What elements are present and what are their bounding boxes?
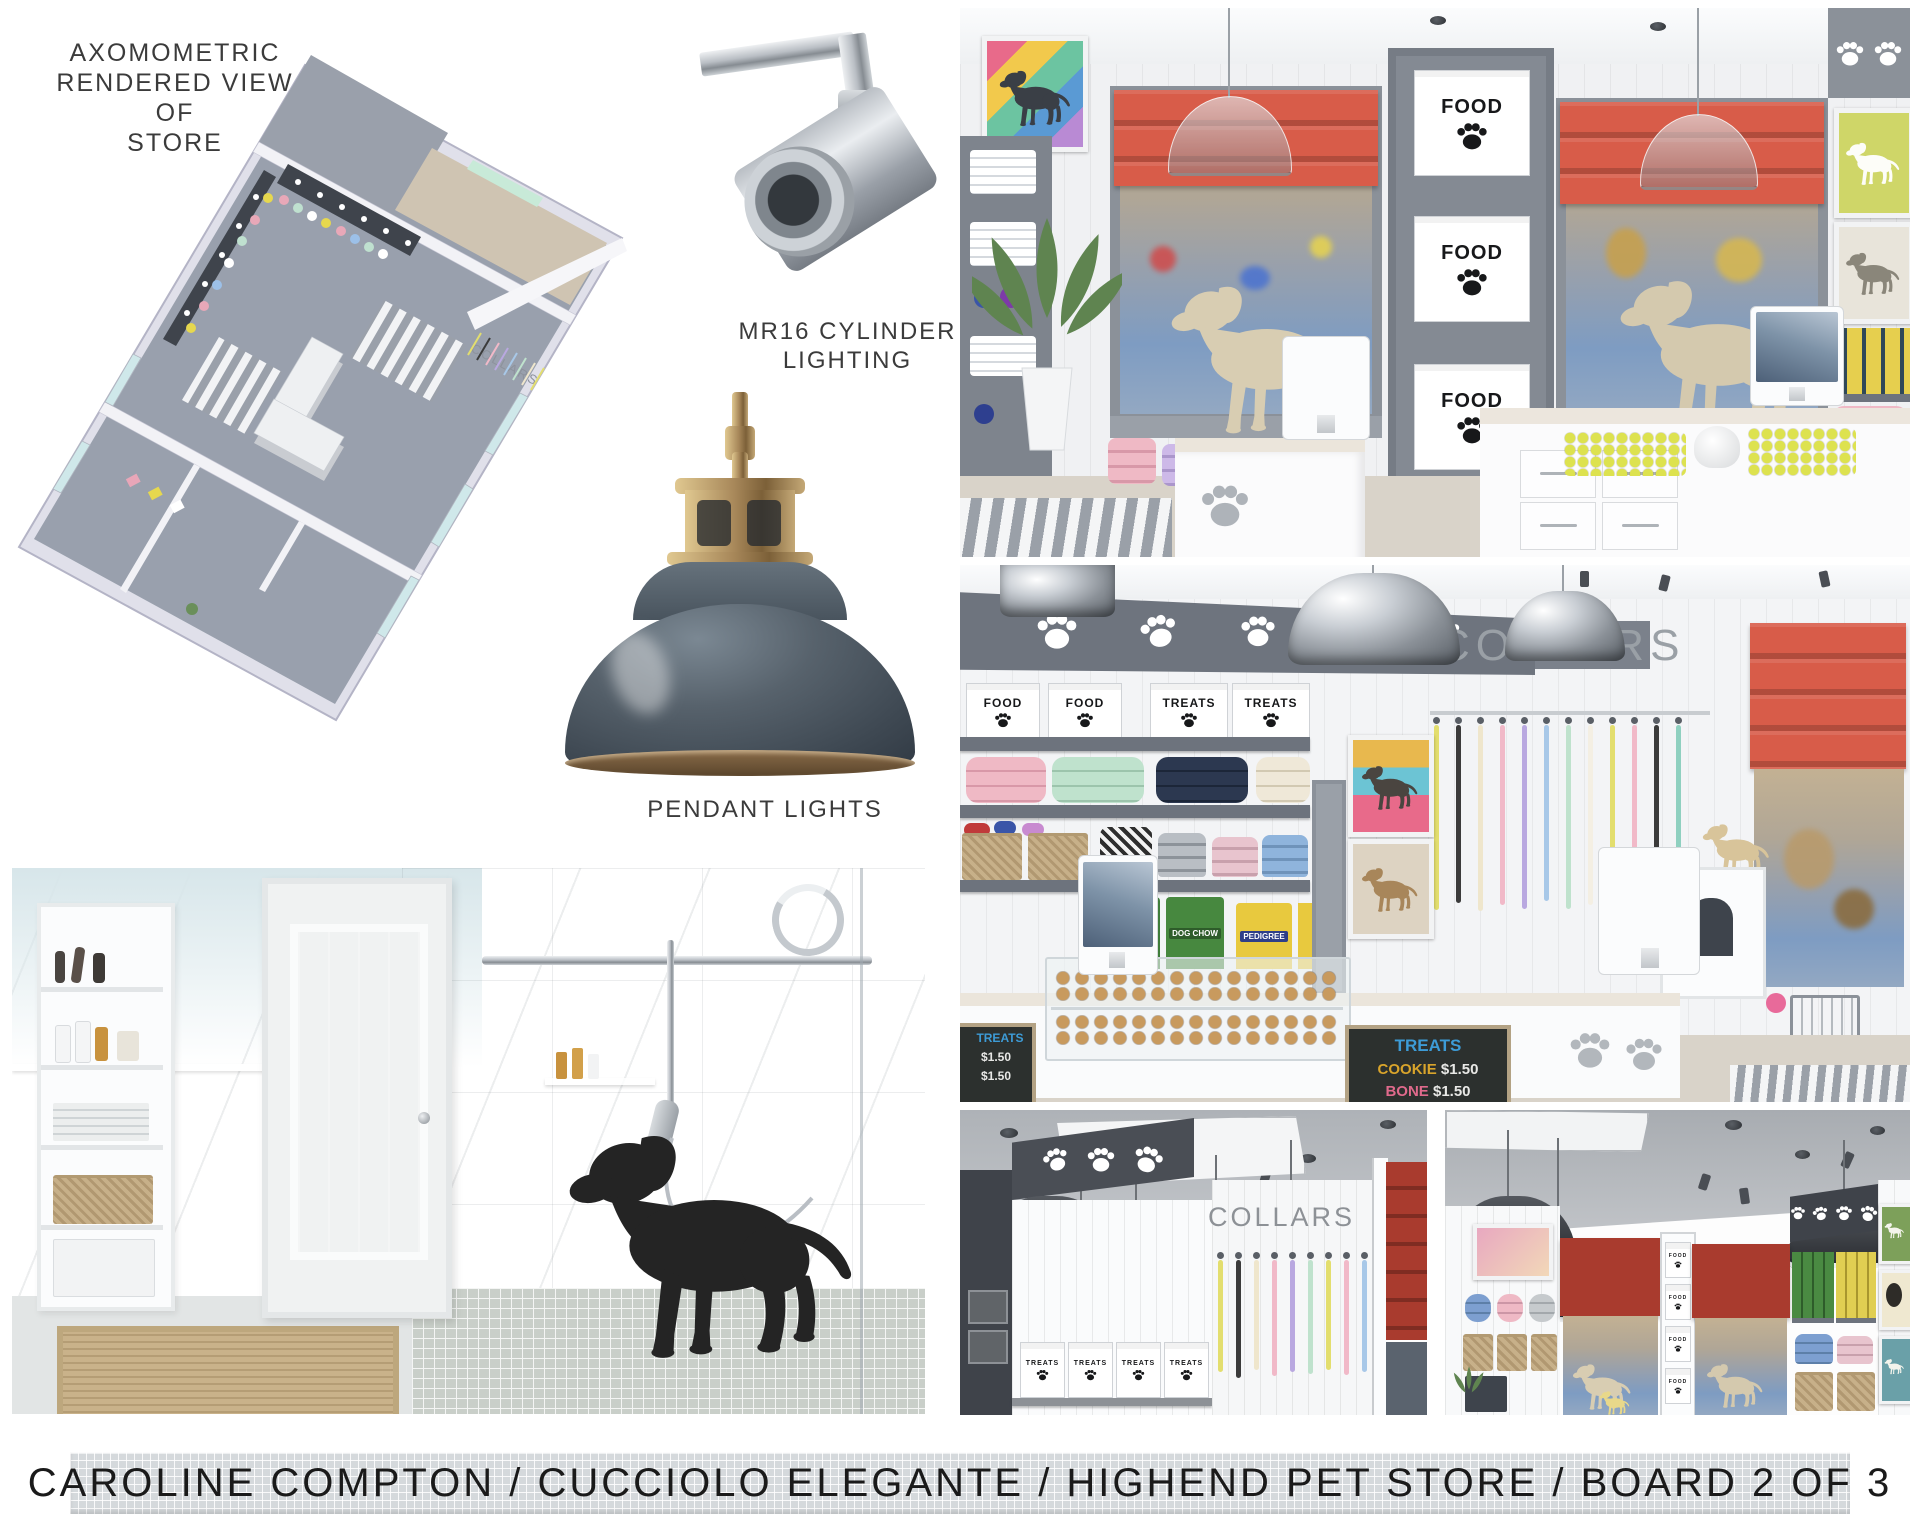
paw-icon	[1135, 609, 1183, 654]
chalk-price: $1.50	[960, 1048, 1032, 1067]
pendant-brass-rim	[565, 750, 915, 776]
paw-icon	[1128, 1140, 1167, 1177]
grooming-brush	[55, 951, 65, 983]
paw-icon	[1810, 1203, 1830, 1222]
ceiling-spotlight	[1650, 22, 1666, 31]
wicker-basket	[1531, 1334, 1557, 1371]
cushion-stack-pink	[966, 757, 1046, 803]
chalk-price: $1.50	[1433, 1083, 1471, 1100]
art-dog	[1883, 1221, 1905, 1239]
chrome-dome-pendant	[1505, 591, 1625, 661]
art-dog	[1359, 862, 1419, 914]
wicker-basket	[1837, 1372, 1875, 1411]
chalk-item: COOKIE	[1378, 1061, 1437, 1078]
food-box: FOOD	[1665, 1284, 1691, 1320]
paw-soffit	[1828, 8, 1910, 98]
leash-strip	[1478, 725, 1483, 911]
treats-box-label: TREATS	[1026, 1360, 1059, 1367]
shelf-box	[968, 1290, 1008, 1324]
checkout-counter	[1175, 438, 1365, 557]
red-roman-shade	[1750, 623, 1906, 769]
pendant-specular-highlight	[601, 624, 680, 722]
folded-stack	[1529, 1294, 1555, 1322]
amber-bottle	[95, 1027, 108, 1061]
paw-icon	[1039, 1142, 1074, 1175]
paw-icon	[1239, 614, 1277, 648]
bowl-stack-blue	[1262, 835, 1308, 877]
chalk-price: $1.50	[960, 1067, 1032, 1086]
wicker-basket	[53, 1175, 153, 1224]
pendant-lights-label: PENDANT LIGHTS	[640, 796, 890, 825]
paw-icon	[1199, 482, 1251, 529]
paw-icon	[1180, 712, 1198, 728]
paw-icon	[1835, 40, 1865, 67]
food-box: FOOD	[1414, 70, 1530, 176]
dog-art-frame	[1879, 1336, 1910, 1404]
treats-box: TREATS	[1020, 1342, 1065, 1398]
striped-rug	[1730, 1065, 1910, 1102]
wicker-basket	[1497, 1334, 1527, 1371]
recessed-light	[1795, 1150, 1810, 1159]
treats-box-label: TREATS	[1170, 1360, 1203, 1367]
tennis-ball-display	[1748, 428, 1856, 476]
food-box-label: FOOD	[1669, 1337, 1687, 1343]
treats-box: TREATS	[1232, 683, 1310, 741]
paw-icon	[1624, 1036, 1664, 1072]
shelf	[41, 1225, 163, 1230]
board-title: CAROLINE COMPTON / CUCCIOLO ELEGANTE / H…	[28, 1461, 1892, 1506]
wall-column	[1878, 1180, 1910, 1415]
shelf-board	[960, 805, 1310, 818]
food-box: FOOD	[1414, 216, 1530, 322]
collars-sign: COLLARS	[1208, 1202, 1378, 1233]
chalkboard-menu-partial: TREATS $1.50 $1.50	[960, 1023, 1036, 1102]
cookie-tray	[1055, 1015, 1339, 1045]
dark-shelf-column	[960, 1170, 1012, 1415]
paw-icon	[1035, 611, 1079, 651]
striped-rug	[960, 498, 1172, 557]
amber-bottle	[556, 1052, 567, 1079]
paw-icon	[1084, 1369, 1097, 1381]
sketchup-render-storefront: FOOD FOOD FOOD FOOD	[1445, 1110, 1910, 1415]
paw-icon	[1873, 40, 1903, 67]
suspended-ceiling-panel	[1445, 1110, 1649, 1152]
store-interior-render-front: FOOD FOOD FOOD	[960, 8, 1910, 557]
bottle	[588, 1054, 599, 1079]
pendant-cage-window	[747, 500, 781, 546]
paw-icon	[1455, 267, 1489, 297]
food-box-label: FOOD	[1669, 1379, 1687, 1385]
mr16-mounting-arm	[699, 31, 856, 76]
towel-stack	[53, 1103, 149, 1141]
treats-box: TREATS	[1116, 1342, 1161, 1398]
paw-icon	[1835, 1205, 1853, 1221]
mr16-label: MR16 CYLINDER LIGHTING	[725, 318, 970, 376]
paw-icon	[1674, 1261, 1682, 1268]
pendant-cord	[1697, 8, 1699, 116]
art-dog	[1883, 1357, 1905, 1375]
art-dog	[1359, 760, 1419, 812]
shelf	[41, 1145, 163, 1150]
leash-rail	[1430, 711, 1710, 715]
leash-strip	[1500, 725, 1505, 905]
bowl-stack-gray	[1158, 833, 1206, 877]
jar	[117, 1031, 139, 1061]
dog-art-frame	[1834, 108, 1910, 218]
cookie-tray	[1055, 971, 1339, 1001]
paw-icon	[1455, 121, 1489, 151]
food-box-label: FOOD	[1669, 1295, 1687, 1301]
store-interior-render-collars: COLLARS FOOD	[960, 565, 1910, 1102]
chrome-dome-pendant	[1000, 565, 1115, 617]
folded-stack	[1497, 1294, 1523, 1322]
chalk-heading: TREATS	[1349, 1033, 1507, 1059]
leash-strip	[1326, 1260, 1331, 1370]
cushion-stack-cream	[1256, 757, 1310, 803]
paw-icon	[1857, 1202, 1880, 1223]
leash-strip	[1272, 1260, 1277, 1376]
food-box-label: FOOD	[1441, 96, 1503, 119]
pink-ball-toy	[1766, 993, 1786, 1013]
tennis-ball-display	[1564, 432, 1686, 476]
monitor-screen	[1750, 306, 1844, 406]
bowl-stack-pink	[1212, 837, 1258, 877]
pendant-cage	[685, 490, 795, 556]
sketchup-render-collars-wall: TREATS TREATS TREATS TREATS COLLARS	[960, 1110, 1427, 1415]
food-box: FOOD	[1048, 683, 1122, 741]
dog-art-frame	[1879, 1204, 1910, 1264]
shelf	[41, 987, 163, 992]
art-dog	[1843, 137, 1901, 187]
leash-strip	[1344, 1260, 1349, 1375]
mr16-cylinder-light-photo	[690, 28, 945, 313]
dog-art-frame	[1834, 222, 1910, 324]
cushion-stack-mint	[1052, 757, 1144, 803]
treats-box: TREATS	[1150, 683, 1228, 741]
pendant-dome-shade	[565, 604, 915, 764]
paw-icon	[1674, 1345, 1682, 1352]
leash-strip	[1544, 725, 1549, 901]
food-box: FOOD	[1665, 1368, 1691, 1404]
red-roman-shade	[1386, 1162, 1427, 1340]
dog-art-frame	[1348, 735, 1434, 837]
food-box-label: FOOD	[1441, 242, 1503, 265]
chalk-item: BONE	[1385, 1083, 1428, 1100]
wicker-basket	[1795, 1372, 1833, 1411]
dog-wash-room-render	[12, 868, 925, 1414]
leash-strip	[1236, 1260, 1241, 1378]
shampoo-bottle	[55, 1025, 71, 1063]
art-dog-oval	[1886, 1283, 1902, 1307]
leash-strip	[1434, 725, 1439, 910]
potted-plant	[972, 158, 1122, 458]
pendant-cage-window	[697, 500, 731, 546]
dog-art-frame	[1879, 1270, 1910, 1330]
yellow-food-bags	[1836, 1252, 1876, 1323]
paw-icon	[1790, 1206, 1806, 1220]
food-box: FOOD	[1665, 1242, 1691, 1278]
shelf-board	[960, 737, 1310, 751]
paw-icon	[1076, 712, 1094, 728]
food-box-label: FOOD	[984, 696, 1023, 710]
pendant-light-photo	[555, 392, 925, 792]
monitor-screen	[1078, 855, 1158, 975]
dog-art-frame	[982, 36, 1088, 152]
counter-drawer	[1520, 502, 1596, 550]
treats-box: TREATS	[1164, 1342, 1209, 1398]
axonometric-floor-plan-render: COLLARS	[15, 15, 645, 815]
design-board: AXOMOMETRIC RENDERED VIEW OF STORE MR16 …	[0, 0, 1920, 1536]
grooming-shelf-unit	[37, 903, 175, 1311]
art-dog	[1843, 247, 1901, 297]
grooming-brush	[71, 946, 86, 983]
shower-glass-rail	[482, 956, 872, 965]
recessed-light	[1000, 1128, 1018, 1138]
paw-icon	[1036, 1369, 1049, 1381]
pedigree-label: PEDIGREE	[1240, 931, 1287, 942]
food-box-label: FOOD	[1669, 1253, 1687, 1259]
cushion-stack-navy	[1156, 757, 1248, 803]
red-roman-shade	[1692, 1244, 1790, 1318]
chalk-heading: TREATS	[970, 1029, 1030, 1048]
shower-glass-shelf	[545, 1078, 655, 1085]
pendant-cord	[1507, 1130, 1509, 1200]
monitor-back	[1282, 336, 1370, 440]
paw-icon	[994, 712, 1012, 728]
leash-wall	[1218, 1260, 1378, 1400]
recessed-light	[1380, 1120, 1396, 1129]
jute-rug	[57, 1326, 399, 1414]
track-spotlight	[1580, 571, 1589, 587]
amber-bottle	[572, 1048, 583, 1079]
door-glass-panel	[290, 924, 428, 1260]
leash-strip	[1290, 1260, 1295, 1372]
window-dark	[1386, 1342, 1427, 1415]
bowl-stack-pink	[1837, 1336, 1873, 1364]
chalk-price: $1.50	[1441, 1061, 1479, 1078]
dog-art-frame	[1348, 839, 1434, 939]
art-colorfield	[1477, 1228, 1549, 1276]
puppy-statue	[1597, 1388, 1631, 1415]
dog-chow-label: DOG CHOW	[1169, 928, 1221, 939]
paw-icon	[1086, 1146, 1116, 1173]
bowl-stack-blue	[1795, 1334, 1833, 1364]
leash-strip	[1308, 1260, 1313, 1374]
paw-icon	[1180, 1369, 1193, 1381]
case-shelf	[1051, 1007, 1343, 1010]
shower-slide-bar	[667, 940, 674, 1115]
glass-panel-edge	[860, 868, 863, 1414]
treats-box-label: TREATS	[1244, 696, 1297, 710]
wicker-basket	[962, 833, 1022, 880]
leash-strip	[1362, 1260, 1367, 1372]
pendant-cord	[1228, 8, 1230, 98]
art-dog	[995, 63, 1073, 129]
leash-strip	[1566, 725, 1571, 909]
wash-room-door	[262, 878, 452, 1318]
paw-icon	[1132, 1369, 1145, 1381]
door-knob	[418, 1112, 430, 1124]
leash-strip	[1588, 725, 1593, 905]
grooming-brush	[93, 953, 105, 983]
mr16-lens	[724, 126, 876, 278]
shelf	[41, 1065, 163, 1070]
green-food-bags	[1792, 1252, 1834, 1323]
treats-box-label: TREATS	[1074, 1360, 1107, 1367]
storage-bin	[53, 1239, 155, 1297]
shelf-board	[1012, 1398, 1212, 1406]
food-box: FOOD	[1665, 1326, 1691, 1362]
leash-strip	[1254, 1260, 1259, 1370]
treats-box-label: TREATS	[1122, 1360, 1155, 1367]
paw-icon	[1568, 1030, 1612, 1070]
treats-box: TREATS	[1068, 1342, 1113, 1398]
plant-leaves	[1445, 1350, 1499, 1415]
dog-silhouette-decal	[557, 1103, 857, 1371]
monitor-back	[1598, 847, 1700, 975]
food-column: FOOD FOOD FOOD FOOD	[1660, 1232, 1696, 1415]
food-box-label: FOOD	[1066, 696, 1105, 710]
counter-drawer	[1602, 502, 1678, 550]
treats-box-label: TREATS	[1162, 696, 1215, 710]
dog-statue	[1703, 1358, 1765, 1410]
chalkboard-menu: TREATS COOKIE $1.50 BONE $1.50	[1345, 1025, 1511, 1102]
leash-strip	[1456, 725, 1461, 903]
mr16-cylinder-body	[730, 83, 941, 276]
paw-icon	[1674, 1387, 1682, 1394]
recessed-light	[1725, 1120, 1742, 1130]
street-scene	[1754, 769, 1904, 987]
red-roman-shade	[1560, 1238, 1660, 1316]
shampoo-bottle	[75, 1021, 91, 1063]
title-banner: CAROLINE COMPTON / CUCCIOLO ELEGANTE / H…	[70, 1452, 1850, 1514]
ceiling-spotlight	[1430, 16, 1446, 25]
shelf-box	[968, 1330, 1008, 1364]
leash-strip	[1522, 725, 1527, 909]
food-box: FOOD	[966, 683, 1040, 741]
art-frame	[1473, 1224, 1553, 1280]
paw-icon	[1674, 1303, 1682, 1310]
leash-strip	[1218, 1260, 1223, 1372]
paw-icon	[1262, 712, 1280, 728]
recessed-light	[1870, 1126, 1885, 1135]
folded-stack	[1465, 1294, 1491, 1322]
plush-sheep-toy	[1694, 426, 1740, 468]
